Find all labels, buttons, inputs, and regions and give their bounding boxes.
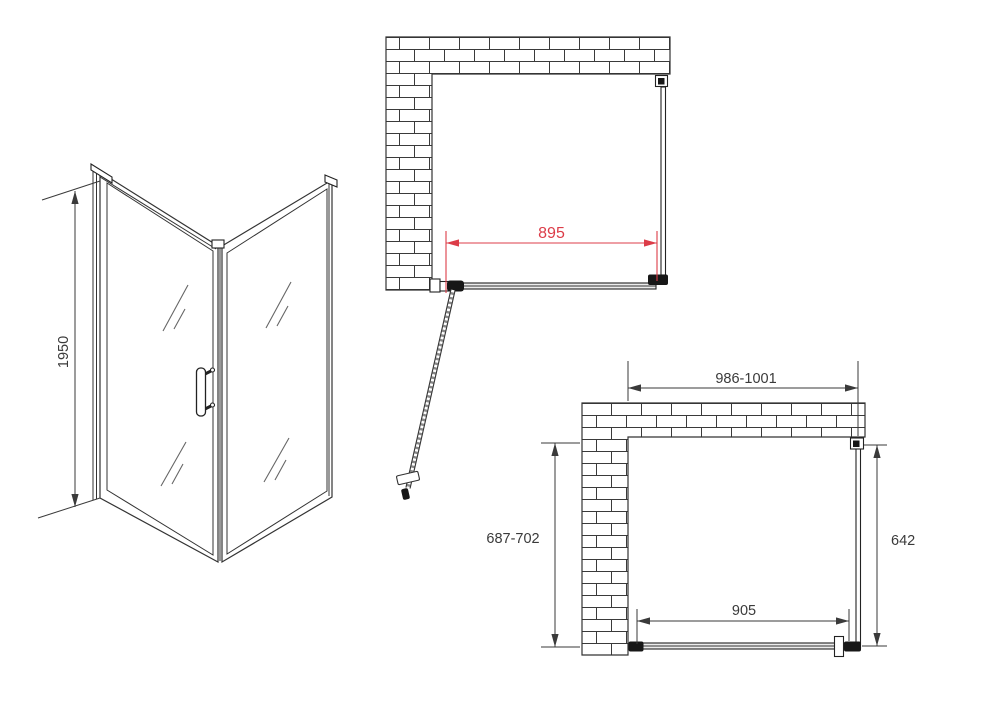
door-handle-3d bbox=[197, 368, 215, 416]
wall-profile-left bbox=[93, 169, 97, 500]
bottom-plan-view: 986-1001 687-702 bbox=[486, 361, 915, 657]
door-handle-bottom-plan bbox=[835, 637, 844, 657]
dim-label-wall-side-depth: 687-702 bbox=[486, 531, 539, 547]
side-profile-cap bbox=[325, 175, 337, 187]
dim-label-door-glass-width: 895 bbox=[538, 225, 565, 242]
dim-label-door-opening-width: 905 bbox=[732, 603, 756, 619]
brick-wall-top-plan bbox=[386, 37, 670, 290]
side-glass-outline bbox=[227, 189, 327, 554]
door-hinge bbox=[447, 281, 464, 292]
arrow-up-icon bbox=[551, 443, 558, 456]
open-door-swing bbox=[396, 290, 455, 501]
corner-bracket-top-plan bbox=[648, 275, 668, 286]
dim-label-height: 1950 bbox=[56, 336, 72, 368]
arrow-down-icon bbox=[873, 633, 880, 646]
dim-wall-side-depth: 687-702 bbox=[486, 443, 580, 647]
dim-height-1950: 1950 bbox=[38, 181, 100, 518]
side-view-3d: 1950 bbox=[38, 164, 337, 562]
dim-door-opening-width: 905 bbox=[637, 603, 849, 644]
dim-side-panel-depth: 642 bbox=[862, 445, 915, 646]
wall-mount-bracket-bottom bbox=[851, 438, 864, 449]
door-glass-closed bbox=[446, 283, 656, 289]
technical-drawing-page: 1950 bbox=[0, 0, 1000, 707]
fixed-panel-top-plan bbox=[661, 87, 666, 275]
arrow-right-icon bbox=[836, 617, 849, 624]
corner-post-cap bbox=[212, 240, 224, 248]
wall-mount-bracket-top bbox=[656, 76, 668, 87]
side-glass-panel-3d bbox=[222, 180, 332, 562]
arrow-left-icon bbox=[628, 384, 641, 391]
door-frame-outline bbox=[100, 172, 218, 562]
door-glass-panel-3d bbox=[100, 172, 218, 562]
arrow-right-icon bbox=[845, 384, 858, 391]
wall-bracket-bottom-plan bbox=[629, 642, 644, 652]
shower-enclosure-drawing: 1950 bbox=[0, 0, 1000, 707]
glass-shine-marks bbox=[161, 282, 291, 486]
arrow-left-icon bbox=[446, 239, 459, 246]
extension-line-top bbox=[42, 181, 100, 200]
arrow-up-icon bbox=[71, 191, 78, 204]
dim-label-side-panel-depth: 642 bbox=[891, 533, 915, 549]
dim-label-overall-width: 986-1001 bbox=[715, 371, 776, 387]
corner-bracket-bottom-plan bbox=[844, 642, 861, 652]
extension-line-bottom bbox=[38, 498, 100, 518]
arrow-down-icon bbox=[551, 634, 558, 647]
door-handle-plan bbox=[396, 471, 419, 485]
wall-profile-cap bbox=[91, 164, 112, 183]
side-frame-outline bbox=[222, 180, 332, 562]
door-glass-bar-bottom bbox=[630, 643, 856, 649]
arrow-up-icon bbox=[873, 445, 880, 458]
door-end-cap bbox=[401, 488, 410, 500]
arrow-left-icon bbox=[637, 617, 650, 624]
arrow-right-icon bbox=[644, 239, 657, 246]
wall-profile-piece bbox=[430, 279, 440, 292]
brick-wall-bottom-plan bbox=[582, 403, 865, 655]
fixed-panel-bottom-plan bbox=[856, 448, 861, 648]
